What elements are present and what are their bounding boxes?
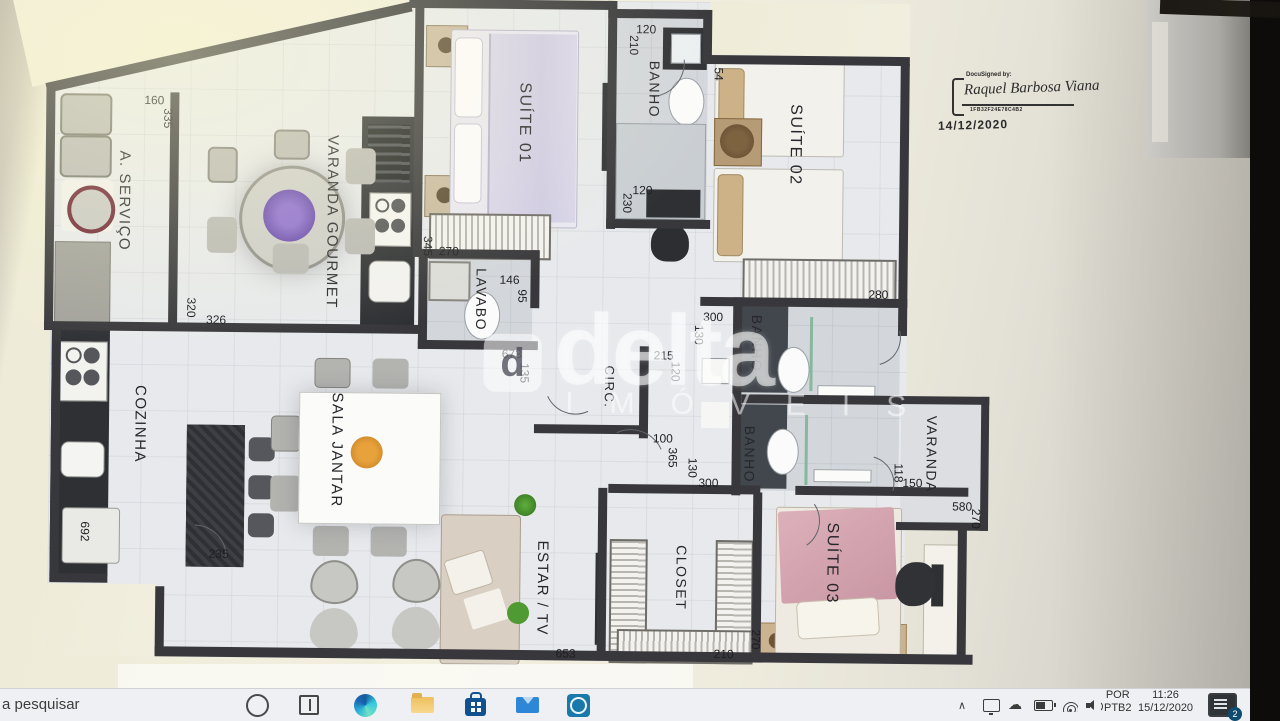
gourmet-chairs-side xyxy=(208,147,238,183)
room-label-su-te-03: SUÍTE 03 xyxy=(822,523,841,605)
task-view-button[interactable] xyxy=(296,693,322,717)
grill-icon xyxy=(368,124,411,182)
wall xyxy=(898,64,910,336)
edge-button[interactable] xyxy=(352,693,378,717)
docusign-stamp: DocuSigned by: Raquel Barbosa Viana 1FB3… xyxy=(930,62,1100,140)
laundry-sink xyxy=(60,135,112,178)
room-label-su-te-01: SUÍTE 01 xyxy=(515,82,534,164)
notification-badge: 2 xyxy=(1228,707,1242,721)
tray-chevron-button[interactable]: ∧ xyxy=(958,689,966,721)
dimension-label: 210 xyxy=(627,35,641,55)
wifi-icon xyxy=(1062,699,1078,712)
action-center-button[interactable]: 2 xyxy=(1208,693,1237,717)
stamp-date: 14/12/2020 xyxy=(938,117,1008,133)
dimension-label: 692 xyxy=(78,521,92,541)
mail-button[interactable] xyxy=(514,693,540,717)
wall xyxy=(419,249,539,259)
stove-burners xyxy=(66,347,82,363)
dimension-label: 150 xyxy=(902,476,922,490)
dimension-label: 54 xyxy=(712,67,726,81)
language-indicator[interactable]: POR PTB2 xyxy=(1104,689,1132,721)
dimension-label: 160 xyxy=(144,93,164,107)
pillow xyxy=(453,123,482,203)
dimension-label: 215 xyxy=(654,348,674,362)
room-label-varanda-gourmet: VARANDA GOURMET xyxy=(323,135,342,309)
wall xyxy=(608,9,710,19)
office-chair xyxy=(651,223,689,261)
language-label: POR xyxy=(1106,689,1130,702)
dimension-label: 135 xyxy=(517,363,531,383)
clock-date: 15/12/2020 xyxy=(1138,702,1193,715)
dimension-label: 335 xyxy=(161,108,175,128)
file-explorer-icon xyxy=(411,697,434,713)
dimension-label: 120 xyxy=(668,362,682,382)
cooktop-icon xyxy=(369,192,412,246)
file-explorer-button[interactable] xyxy=(409,693,435,717)
dimension-label: 300 xyxy=(703,310,723,324)
tray-device-button[interactable] xyxy=(983,689,1000,721)
wall xyxy=(957,525,967,663)
windows-taskbar: a pesquisar ∧ ☁ POR PTB2 11:26 15/12/202… xyxy=(0,688,1250,721)
pillow xyxy=(717,174,744,256)
wall xyxy=(597,488,608,656)
edge-icon xyxy=(354,694,377,717)
room-label-circ-: CIRC. xyxy=(602,365,617,408)
dimension-label: 326 xyxy=(206,313,226,327)
dimension-label: 210 xyxy=(714,647,734,661)
stamp-bracket xyxy=(952,78,964,116)
laundry-counter xyxy=(54,241,111,326)
dining-chairs-left xyxy=(271,415,301,451)
action-center-icon xyxy=(1214,699,1227,701)
dimension-label: 235 xyxy=(209,547,229,561)
wall xyxy=(897,396,989,405)
speaker-icon xyxy=(1086,699,1102,712)
cortana-button[interactable] xyxy=(244,693,270,717)
plant-icon xyxy=(514,494,536,516)
gourmet-sink xyxy=(368,260,410,302)
rug-icon xyxy=(720,124,754,158)
wall xyxy=(530,250,540,308)
keyboard-label: PTB2 xyxy=(1104,702,1132,715)
desk-suite02 xyxy=(646,189,700,218)
wall xyxy=(418,249,428,349)
clock[interactable]: 11:26 15/12/2020 xyxy=(1138,689,1193,721)
room-label-cozinha: COZINHA xyxy=(131,385,149,463)
wall xyxy=(155,586,165,654)
dimension-label: 100 xyxy=(653,431,673,445)
dell-icon xyxy=(567,694,590,717)
photographed-screen: d delta IMÓVEIS A. SERVIÇOVARANDA GOURME… xyxy=(0,0,1250,688)
room-label-varanda: VARANDA xyxy=(923,416,940,493)
cloud-icon: ☁ xyxy=(1008,697,1022,713)
tray-wifi-button[interactable] xyxy=(1062,689,1078,721)
stamp-prefix: DocuSigned by: xyxy=(966,72,1012,78)
tray-battery-button[interactable] xyxy=(1034,689,1053,721)
washing-machine-drum xyxy=(67,185,116,234)
room-label-a-servi-o: A. SERVIÇO xyxy=(115,150,133,251)
room-label-closet: CLOSET xyxy=(673,545,690,610)
dimension-label: 270 xyxy=(439,244,459,258)
battery-icon xyxy=(1034,700,1053,711)
dimension-label: 653 xyxy=(556,646,576,660)
dimension-label: 146 xyxy=(499,273,519,287)
dimension-label: 320 xyxy=(184,297,198,317)
dimension-label: 270 xyxy=(969,509,983,529)
room-label-banho: BANHO xyxy=(646,61,663,118)
microsoft-store-icon xyxy=(465,698,486,716)
wall-sinks xyxy=(701,358,729,384)
taskbar-search-text[interactable]: a pesquisar xyxy=(2,696,80,713)
wall xyxy=(741,394,901,405)
room-label-banho: BANHO xyxy=(741,426,758,483)
laundry-sink xyxy=(60,93,112,136)
table-centerpiece xyxy=(263,189,316,242)
outside-cover-topright xyxy=(710,2,911,57)
microsoft-store-button[interactable] xyxy=(462,693,488,717)
dimension-label: 365 xyxy=(666,448,680,468)
room-label-estar-tv: ESTAR / TV xyxy=(533,541,551,636)
dimension-label: 120 xyxy=(632,183,652,197)
wall xyxy=(606,219,710,229)
office-chair xyxy=(895,562,935,606)
dell-app-button[interactable] xyxy=(565,693,591,717)
tray-onedrive-button[interactable]: ☁ xyxy=(1008,689,1022,721)
room-label-su-te-02: SUÍTE 02 xyxy=(786,104,805,186)
dimension-label: 230 xyxy=(620,193,634,213)
dimension-label: 270 xyxy=(749,629,763,649)
room-label-banho: BANHO xyxy=(749,315,766,372)
lavabo-sink xyxy=(428,261,470,301)
cortana-icon xyxy=(246,694,269,717)
chevron-up-icon: ∧ xyxy=(958,699,966,712)
kitchen-sink xyxy=(60,441,104,477)
cooktop-burners xyxy=(375,198,389,212)
room-label-lavabo: LAVABO xyxy=(473,268,490,331)
outside-cover-bottomleft xyxy=(47,583,156,656)
dimension-label: 130 xyxy=(692,325,706,345)
dimension-label: 300 xyxy=(698,476,718,490)
wall xyxy=(49,573,107,583)
dimension-label: 345 xyxy=(421,236,435,256)
gourmet-chairs-vertical xyxy=(274,129,310,159)
clock-time: 11:26 xyxy=(1152,689,1179,702)
tray-volume-button[interactable] xyxy=(1086,689,1102,721)
mail-icon xyxy=(516,697,539,713)
pillow xyxy=(454,37,483,117)
device-icon xyxy=(983,699,1000,712)
task-view-icon xyxy=(299,695,319,715)
table-centerpiece xyxy=(351,436,383,468)
dining-chairs xyxy=(314,358,350,388)
stamp-code: 1FB32F24E78C4B2 xyxy=(970,107,1023,113)
stamp-line xyxy=(962,104,1074,106)
dimension-label: 280 xyxy=(868,288,888,302)
image-page-margin xyxy=(118,664,693,688)
room-label-sala-jantar: SALA JANTAR xyxy=(328,392,346,508)
stamp-signature-name: Raquel Barbosa Viana xyxy=(964,78,1100,100)
dimension-label: 95 xyxy=(515,289,529,303)
dimension-label: 673 xyxy=(502,347,522,361)
